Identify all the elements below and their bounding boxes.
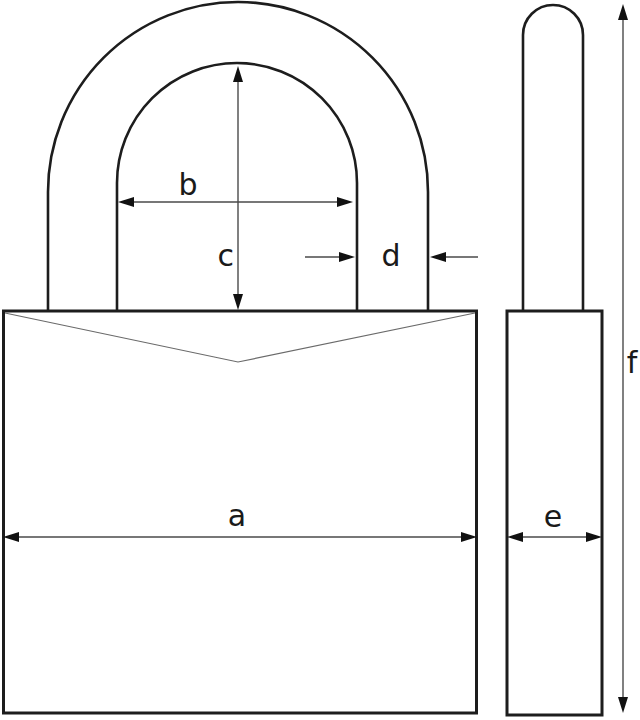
- side-view: [507, 5, 602, 715]
- dimension-f: f: [618, 4, 639, 713]
- dimension-label-e: e: [544, 499, 562, 534]
- front-view: [4, 2, 477, 713]
- arrowhead-left-icon: [430, 252, 446, 262]
- dimension-label-b: b: [178, 167, 197, 202]
- arrowhead-up-icon: [233, 66, 243, 82]
- padlock-dimension-diagram: a b c d e: [0, 0, 640, 720]
- arrowhead-right-icon: [339, 252, 355, 262]
- shackle-inner-outline: [117, 63, 357, 313]
- dimension-label-a: a: [228, 498, 246, 533]
- dimension-label-d: d: [381, 238, 400, 273]
- dimension-c: c: [218, 66, 244, 310]
- diagram-canvas: a b c d e: [0, 0, 640, 720]
- shackle-side-profile: [523, 5, 583, 313]
- dimension-b: b: [118, 167, 353, 207]
- arrowhead-left-icon: [118, 197, 134, 207]
- dimension-d: d: [305, 238, 478, 273]
- dimension-label-c: c: [218, 238, 235, 273]
- arrowhead-up-icon: [618, 4, 628, 20]
- arrowhead-down-icon: [618, 697, 628, 713]
- dimension-label-f: f: [627, 345, 639, 380]
- arrowhead-down-icon: [233, 294, 243, 310]
- arrowhead-right-icon: [337, 197, 353, 207]
